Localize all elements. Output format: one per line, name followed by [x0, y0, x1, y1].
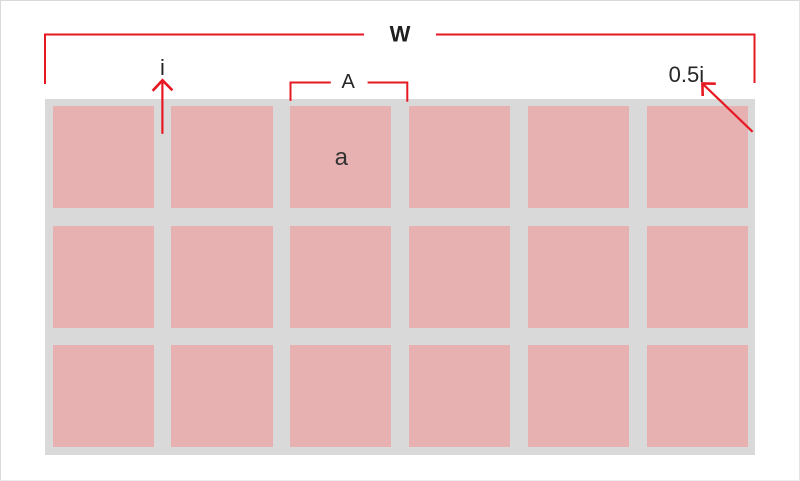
svg-text:i: i: [160, 55, 165, 80]
svg-text:0.5i: 0.5i: [669, 62, 704, 87]
svg-text:W: W: [390, 22, 411, 47]
svg-text:A: A: [342, 71, 356, 93]
svg-text:a: a: [335, 144, 349, 171]
